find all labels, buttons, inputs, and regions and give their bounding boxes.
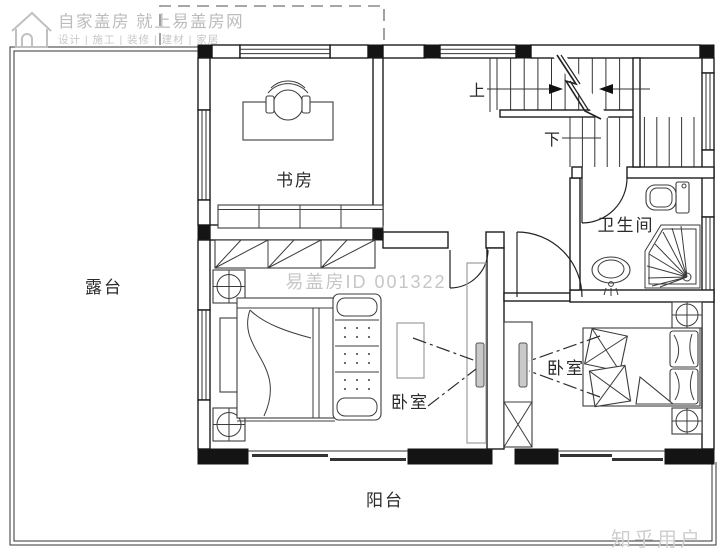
- wardrobe-left-bedroom: [215, 240, 375, 268]
- floor-plan-page: 书房 露台 卫生间 卧室 卧室 阳台 上 下 自家盖房 就上易盖房网 设计 | …: [0, 0, 720, 555]
- column-symbol: [672, 302, 702, 328]
- window-study-left: [198, 110, 210, 200]
- toilet: [646, 182, 689, 213]
- bed-left: [237, 298, 335, 421]
- logo-slogan: 自家盖房 就上易盖房网: [58, 12, 244, 31]
- window-study-top: [240, 45, 330, 58]
- study-cabinet: [218, 205, 383, 228]
- label-stairs-down: 下: [544, 132, 560, 149]
- bench-ottoman: [333, 294, 381, 420]
- floor-plan-drawing: 书房 露台 卫生间 卧室 卧室 阳台 上 下 自家盖房 就上易盖房网 设计 | …: [0, 0, 720, 555]
- label-bedroom-left: 卧室: [391, 393, 429, 412]
- window-stair-right: [702, 73, 714, 150]
- label-terrace: 露台: [85, 278, 123, 297]
- label-study: 书房: [276, 171, 314, 190]
- sliding-door-left: [248, 451, 408, 461]
- stair-treads-lower: [570, 117, 694, 167]
- watermark-id: 易盖房ID 001322: [285, 272, 446, 292]
- watermark-credit: 知乎用户: [611, 528, 703, 551]
- pillow-pinwheel: [585, 329, 628, 372]
- label-bathroom: 卫生间: [598, 216, 655, 235]
- stair-up-arrow: [549, 84, 563, 94]
- door-bedroom-left: [450, 250, 488, 288]
- house-icon: [12, 13, 51, 47]
- bathroom-fixtures: [592, 182, 700, 296]
- bedroom-right-furniture: [504, 302, 702, 447]
- dresser: [397, 323, 424, 378]
- wardrobe-right-bedroom: [504, 322, 532, 447]
- label-balcony: 阳台: [366, 491, 404, 510]
- tv-right: [519, 343, 527, 387]
- pillow-pinwheel: [589, 365, 630, 406]
- logo-services: 设计 | 施工 | 装修 | 建材 | 家居: [58, 33, 219, 46]
- window-bedroom-left: [198, 310, 210, 400]
- site-logo: 自家盖房 就上易盖房网 设计 | 施工 | 装修 | 建材 | 家居: [12, 12, 244, 47]
- window-bathroom-right: [702, 217, 714, 293]
- stair-handrail: [500, 110, 637, 117]
- bedroom-left-furniture: [213, 240, 486, 443]
- window-stair-top: [440, 45, 516, 58]
- study-furniture: [218, 81, 383, 228]
- sliding-door-right: [558, 451, 665, 461]
- nightstand: [220, 318, 238, 392]
- staircase: [487, 54, 694, 167]
- label-bedroom-right: 卧室: [547, 359, 585, 378]
- bed-right: [583, 328, 700, 407]
- tv-left: [476, 343, 484, 387]
- column-symbol: [672, 408, 702, 434]
- label-stairs-up: 上: [469, 82, 485, 100]
